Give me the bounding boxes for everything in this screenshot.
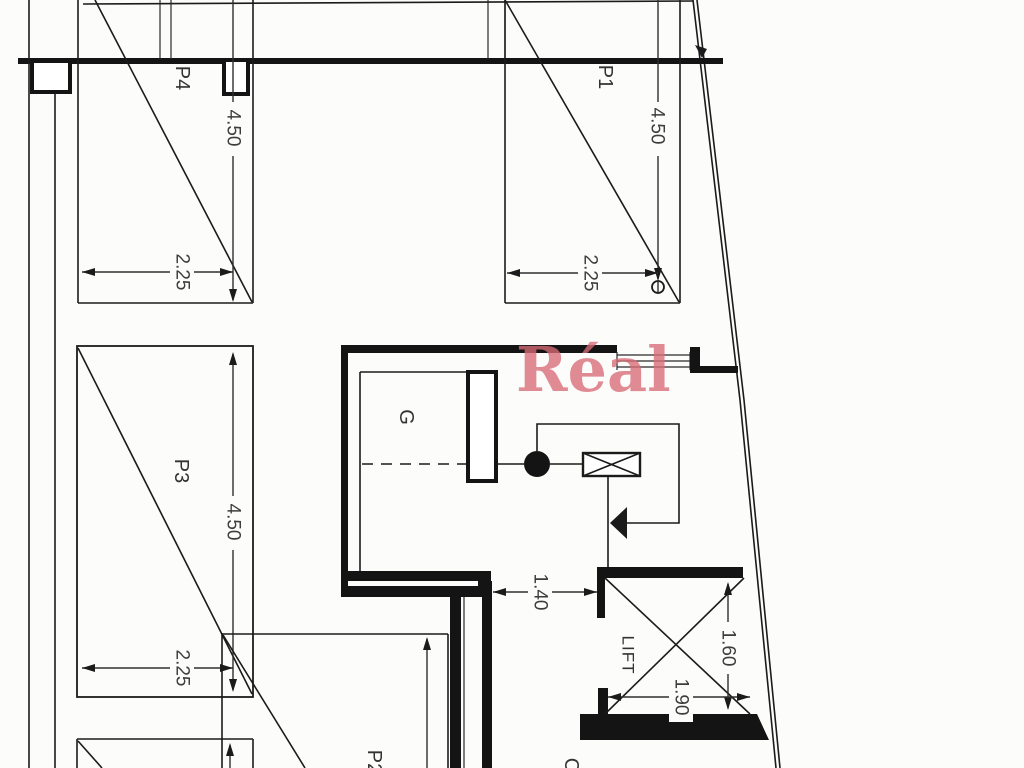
boundary-tick-arrow bbox=[695, 45, 707, 58]
watermark-text: Réal bbox=[516, 333, 671, 406]
corridor-dimension: 1.40 bbox=[493, 566, 597, 618]
dim-p4-depth: 4.50 bbox=[223, 110, 244, 147]
parking-space-p1: P1 4.50 2.25 bbox=[505, 0, 680, 303]
dim-p1-width: 2.25 bbox=[580, 255, 601, 292]
dim-corridor-width: 1.40 bbox=[530, 574, 551, 611]
dim-lift-width: 1.90 bbox=[671, 679, 692, 716]
corridor-walls bbox=[450, 581, 492, 768]
parking-label-p3: P3 bbox=[170, 459, 192, 483]
parking-space-p2: P2 bbox=[222, 633, 448, 768]
ventilation-flow-diagram bbox=[496, 424, 679, 570]
flow-direction-arrow bbox=[610, 507, 627, 539]
dim-p3-width: 2.25 bbox=[172, 650, 193, 687]
dim-p1-depth: 4.50 bbox=[647, 108, 668, 145]
dim-p4-width: 2.25 bbox=[172, 254, 193, 291]
lift-shaft: LIFT 1.60 1.90 bbox=[580, 567, 769, 740]
parking-label-p2: P2 bbox=[363, 750, 385, 768]
left-outer-wall bbox=[29, 0, 55, 768]
corridor-label: C bbox=[560, 758, 582, 768]
wall-column-left bbox=[32, 61, 70, 92]
parking-space-bottom-left bbox=[77, 739, 253, 768]
parking-label-p4: P4 bbox=[171, 66, 193, 90]
garage-label: G bbox=[395, 409, 417, 425]
column-symbol bbox=[524, 451, 550, 477]
floor-plan-drawing: P4 4.50 2.25 P1 4.50 2.25 P3 4.50 bbox=[0, 0, 1024, 768]
wall-column-mid bbox=[224, 60, 248, 94]
duct-shaft bbox=[468, 372, 496, 481]
lift-label: LIFT bbox=[619, 636, 638, 675]
parking-space-p3: P3 4.50 2.25 bbox=[77, 346, 253, 697]
dim-lift-depth: 1.60 bbox=[718, 630, 739, 667]
dim-p3-depth: 4.50 bbox=[223, 504, 244, 541]
parking-space-p4: P4 4.50 2.25 bbox=[78, 0, 253, 303]
floor-plan-image: P4 4.50 2.25 P1 4.50 2.25 P3 4.50 bbox=[0, 0, 1024, 768]
parking-label-p1: P1 bbox=[594, 65, 616, 89]
p2-diagonal bbox=[223, 635, 305, 768]
